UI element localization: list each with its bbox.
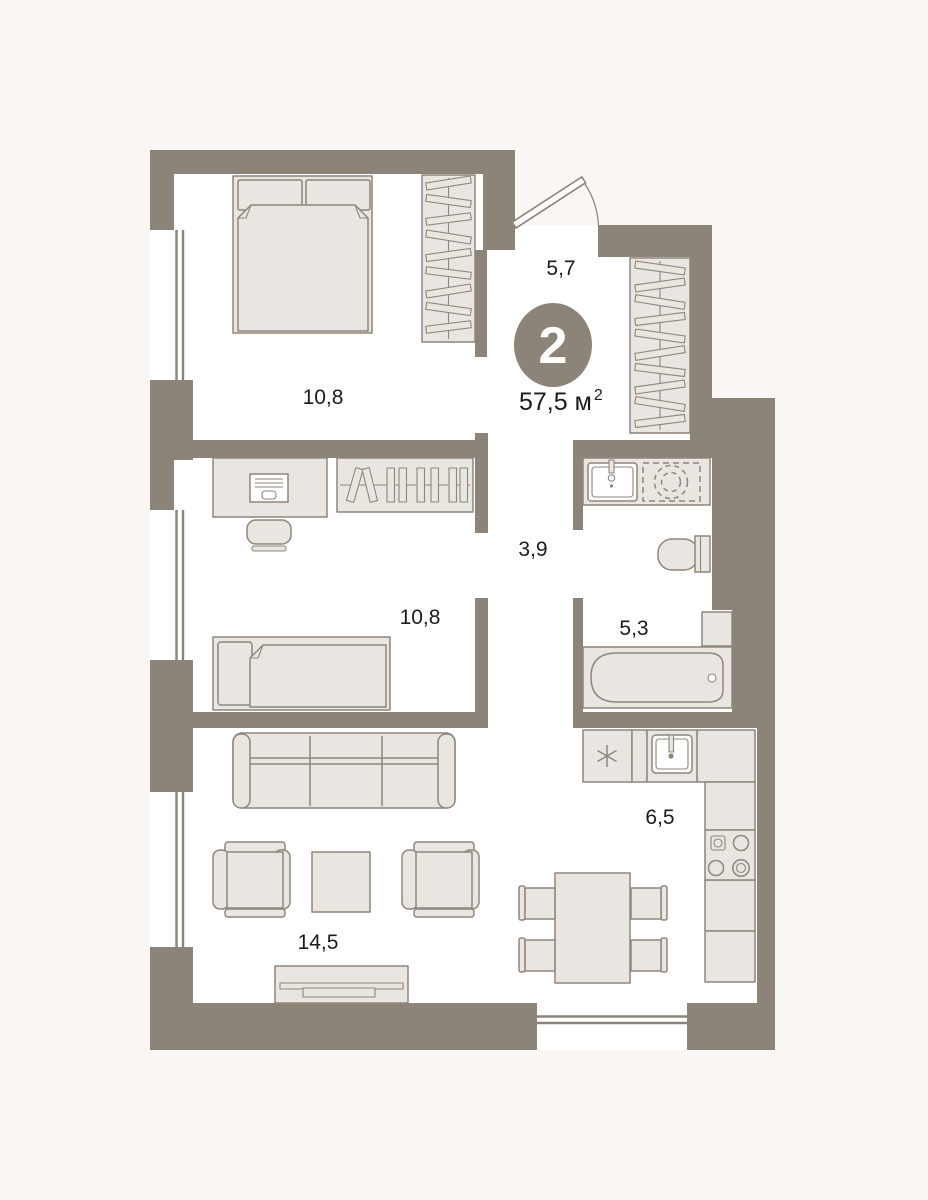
armchair-icon: [213, 842, 290, 917]
sofa-icon: [233, 733, 455, 808]
entrance-door-icon: [512, 177, 598, 228]
dining-chair-icon: [631, 938, 667, 972]
double-bed-icon: [233, 176, 372, 333]
dining-chair-icon: [519, 886, 555, 920]
bathroom-cabinet-icon: [702, 612, 732, 646]
closet-shelf-icon: [337, 458, 473, 512]
desk-chair-icon: [247, 520, 291, 551]
single-bed-icon: [213, 637, 390, 710]
monitor-icon: [250, 474, 288, 502]
dining-chair-icon: [631, 886, 667, 920]
floor-plan: 2 57,5м2 5,7 10,8 3,9 10,8 5,3 6,5 14,5: [0, 0, 928, 1200]
tv-stand-icon: [275, 966, 408, 1003]
room-area-label-entry-hall: 5,7: [546, 257, 575, 280]
wardrobe-icon: [422, 175, 475, 342]
room-area-label-corridor: 3,9: [518, 538, 547, 561]
toilet-icon: [658, 536, 710, 572]
room-area-label-bedroom-2: 10,8: [400, 606, 441, 629]
stove-icon: [705, 830, 755, 880]
dining-table-icon: [555, 873, 630, 983]
bathroom-sink-icon: [588, 460, 637, 501]
hall-wardrobe-icon: [630, 258, 690, 433]
armchair-icon: [402, 842, 479, 917]
floor-plan-page: 2 57,5м2 5,7 10,8 3,9 10,8 5,3 6,5 14,5: [0, 0, 928, 1200]
room-area-label-bedroom-1: 10,8: [303, 386, 344, 409]
coffee-table-icon: [312, 852, 370, 912]
total-area-label: 57,5м2: [519, 387, 603, 416]
kitchen-sink-icon: [647, 730, 697, 782]
bathtub-icon: [583, 647, 732, 708]
fridge-icon: [583, 730, 632, 782]
room-area-label-kitchen: 6,5: [645, 806, 674, 829]
dining-chair-icon: [519, 938, 555, 972]
rooms-count-badge: 2: [514, 303, 592, 387]
room-area-label-bathroom: 5,3: [619, 617, 648, 640]
room-area-label-living-room: 14,5: [298, 931, 339, 954]
rooms-count: 2: [539, 317, 568, 375]
